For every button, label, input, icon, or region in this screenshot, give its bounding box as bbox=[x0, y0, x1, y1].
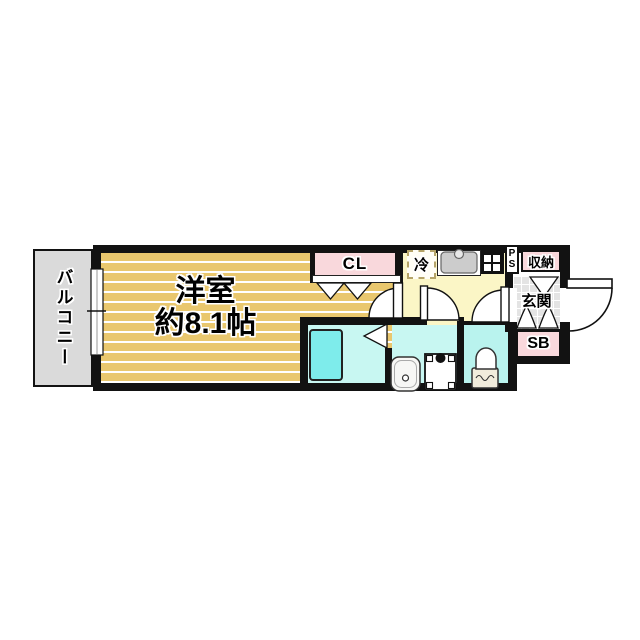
front-door-swing-icon bbox=[560, 279, 612, 331]
western-room-name: 洋室 bbox=[176, 276, 236, 308]
refrigerator-label: 冷 bbox=[407, 250, 436, 279]
western-room-label: 洋室 約8.1帖 bbox=[101, 252, 310, 364]
floor-plan: バルコニー 洋室 約8.1帖 CL 冷 P S 収納 玄関 SB bbox=[0, 0, 640, 640]
closet-label: CL bbox=[315, 253, 395, 275]
door-swing-icon bbox=[369, 283, 403, 318]
balcony-label: バルコニー bbox=[33, 249, 93, 387]
western-room-size: 約8.1帖 bbox=[155, 308, 257, 340]
folding-door-icon bbox=[364, 324, 387, 348]
folding-door-icon bbox=[317, 283, 371, 299]
toilet-icon bbox=[472, 348, 498, 388]
gas-stove-icon bbox=[481, 252, 504, 274]
kitchen-sink-icon bbox=[441, 250, 477, 274]
door-swing-icon bbox=[421, 286, 460, 320]
shoe-box-label: SB bbox=[516, 330, 561, 358]
washing-machine-icon bbox=[425, 353, 456, 390]
bathtub-icon bbox=[310, 330, 342, 380]
door-swing-icon bbox=[472, 287, 517, 322]
entrance-label: 玄関 bbox=[513, 282, 560, 318]
pipe-space-label-s: S bbox=[505, 258, 519, 270]
storage-label: 収納 bbox=[521, 250, 561, 272]
fixtures-layer bbox=[0, 0, 640, 640]
washbasin-icon bbox=[391, 357, 420, 391]
